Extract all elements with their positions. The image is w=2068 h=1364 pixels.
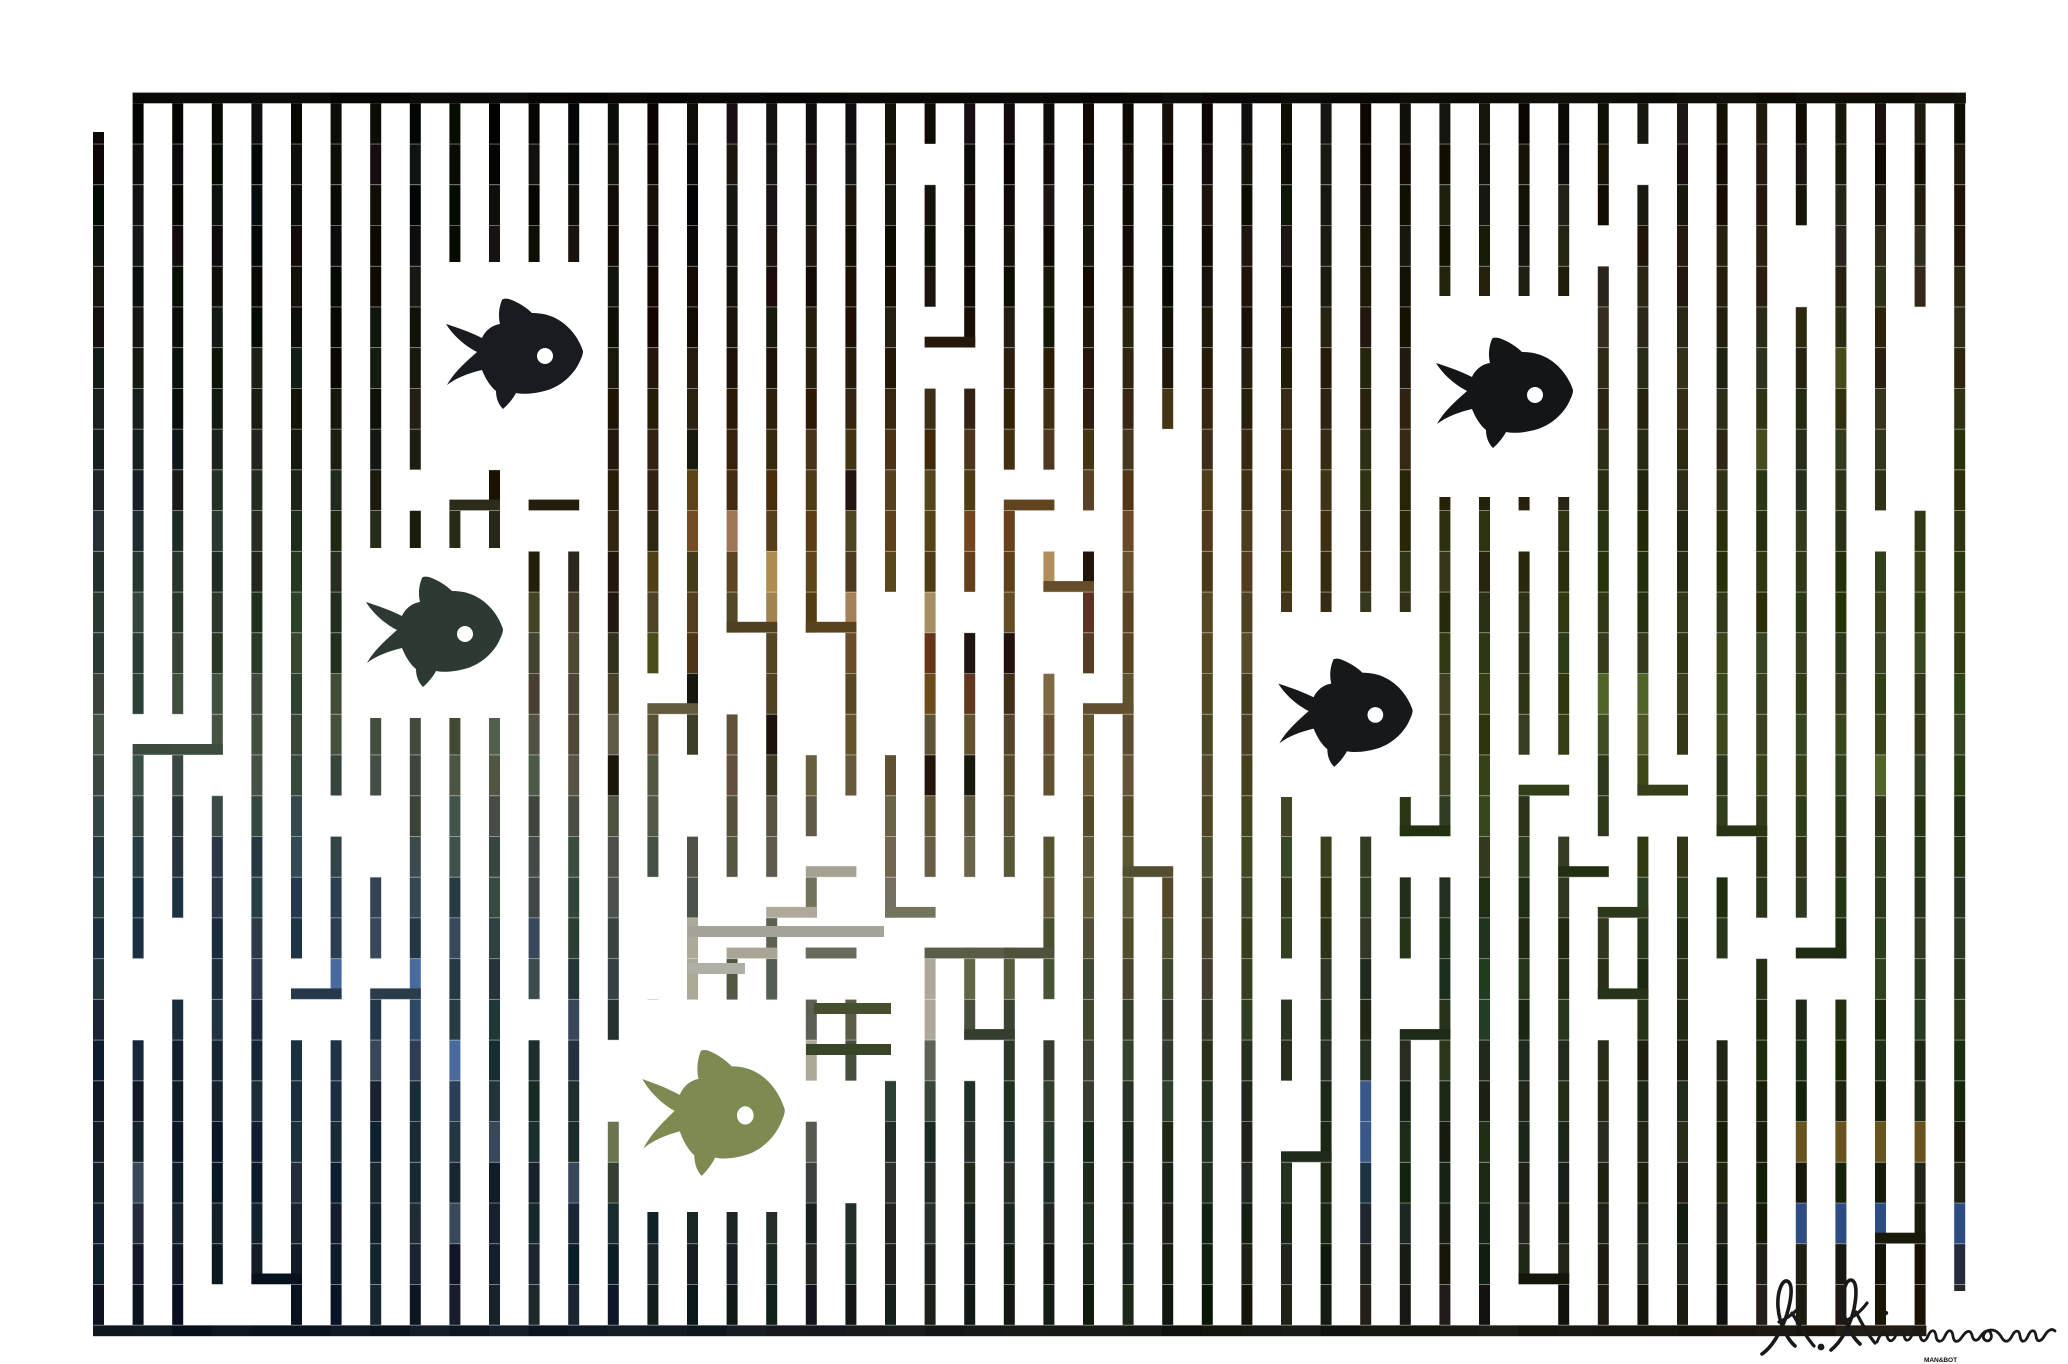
- svg-text:MAN&BOT: MAN&BOT: [1924, 1357, 1957, 1364]
